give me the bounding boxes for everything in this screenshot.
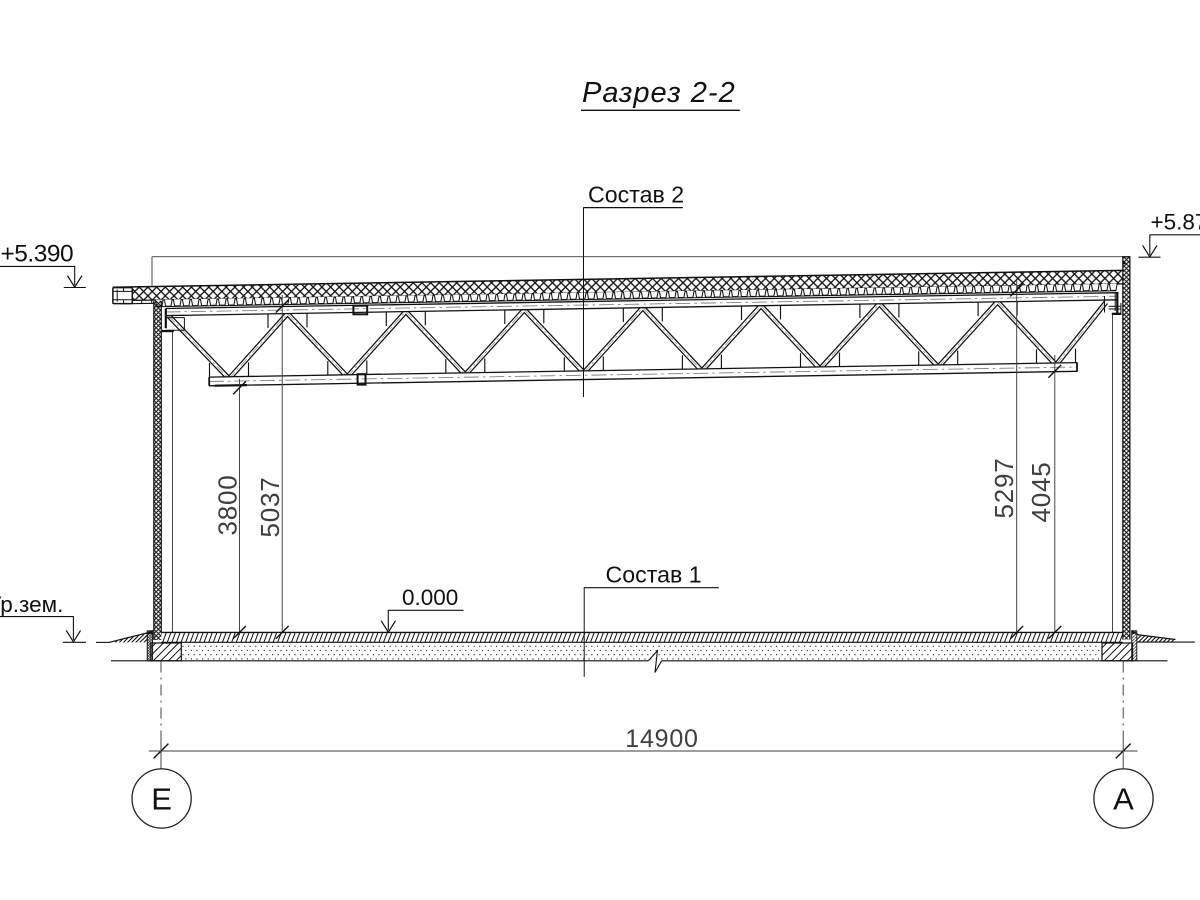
svg-text:14900: 14900 bbox=[625, 725, 699, 753]
svg-text:Состав 1: Состав 1 bbox=[606, 562, 702, 588]
svg-text:+5.870: +5.870 bbox=[1151, 210, 1200, 235]
svg-text:5037: 5037 bbox=[255, 476, 285, 537]
svg-text:А: А bbox=[1113, 782, 1134, 817]
svg-text:+5.390: +5.390 bbox=[1, 240, 74, 267]
svg-text:4045: 4045 bbox=[1026, 461, 1056, 522]
svg-text:Разрез 2-2: Разрез 2-2 bbox=[582, 77, 736, 109]
svg-text:0.000: 0.000 bbox=[402, 585, 458, 610]
svg-text:5297: 5297 bbox=[989, 457, 1019, 518]
svg-text:3800: 3800 bbox=[212, 474, 242, 535]
svg-text:Состав 2: Состав 2 bbox=[588, 181, 684, 207]
svg-text:Е: Е bbox=[151, 782, 172, 817]
svg-text:Ур.зем.: Ур.зем. bbox=[0, 592, 63, 617]
